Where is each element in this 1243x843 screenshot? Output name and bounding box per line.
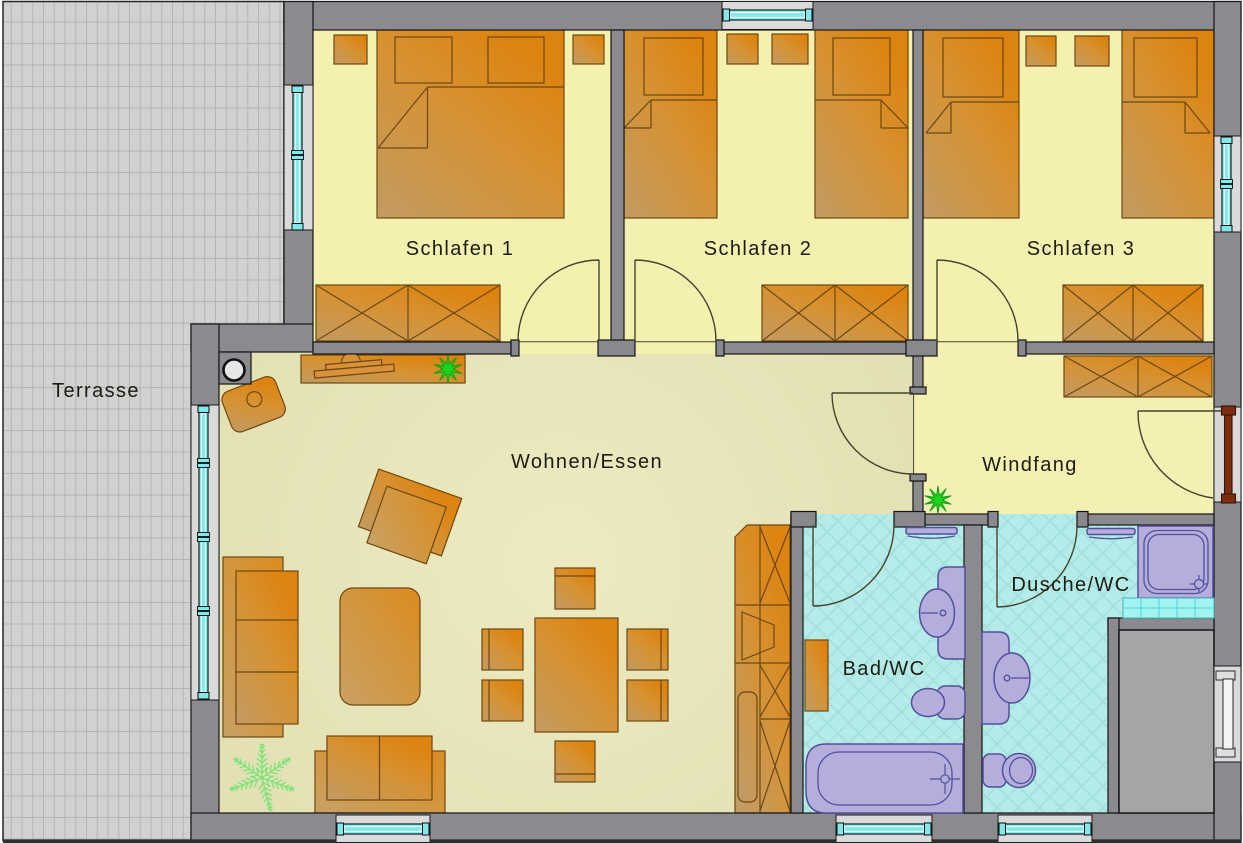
svg-text:Wohnen/Essen: Wohnen/Essen (511, 451, 663, 473)
svg-text:Schlafen 1: Schlafen 1 (406, 238, 515, 260)
svg-text:Terrasse: Terrasse (52, 380, 140, 402)
svg-text:Dusche/WC: Dusche/WC (1011, 574, 1130, 596)
svg-text:Schlafen 3: Schlafen 3 (1027, 238, 1136, 260)
svg-text:Windfang: Windfang (982, 454, 1078, 476)
svg-text:Bad/WC: Bad/WC (843, 658, 926, 680)
svg-text:Schlafen 2: Schlafen 2 (704, 238, 813, 260)
